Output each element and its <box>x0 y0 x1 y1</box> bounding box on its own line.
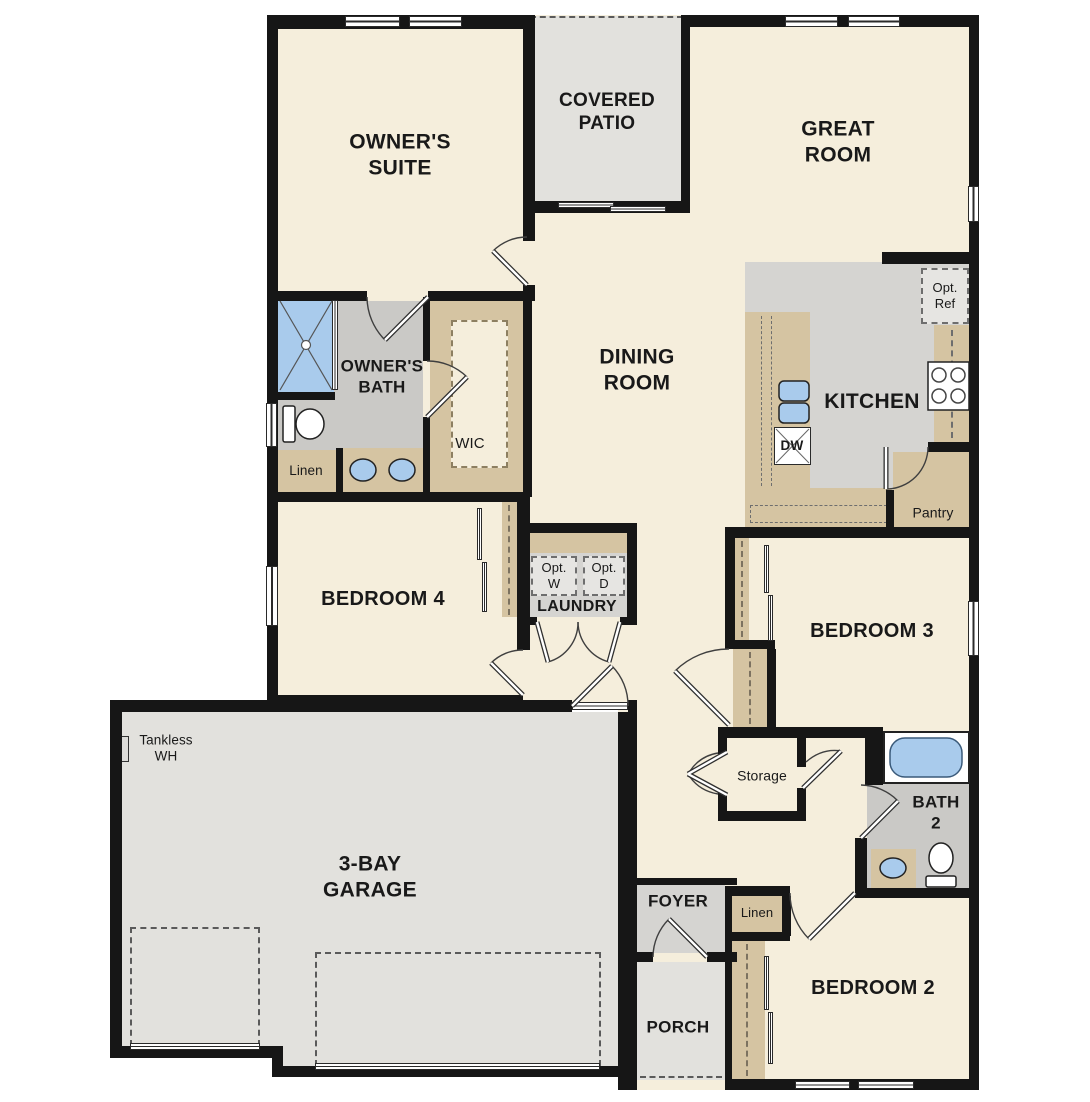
room-label-laundry: LAUNDRY <box>537 597 617 617</box>
wall-segment <box>725 538 735 642</box>
porch-open-edge <box>640 1076 722 1078</box>
room-label-storage: Storage <box>737 767 787 784</box>
window <box>795 1081 850 1089</box>
wall-segment <box>725 1079 979 1090</box>
room-label-covered-patio: COVERED PATIO <box>559 89 655 135</box>
room-label-linen-bath: Linen <box>289 463 323 479</box>
bedroom3-closet-rod <box>741 541 743 647</box>
bypass-door <box>482 562 487 612</box>
bedroom4-closet-rod <box>508 505 510 615</box>
wall-segment <box>865 727 883 785</box>
wall-segment <box>681 15 690 213</box>
owners-vanity <box>343 448 423 492</box>
wall-segment <box>423 297 430 361</box>
wall-segment <box>423 417 430 497</box>
room-label-bedroom2: BEDROOM 2 <box>811 976 935 1000</box>
wall-segment <box>969 15 979 1090</box>
wall-segment <box>267 492 530 502</box>
wall-segment <box>707 952 737 962</box>
wall-segment <box>618 712 637 1090</box>
window <box>266 403 277 447</box>
wall-segment <box>620 617 637 625</box>
shower <box>278 299 334 392</box>
wall-segment <box>517 617 537 625</box>
garage-bay1-outline <box>130 927 260 1046</box>
label-dishwasher: DW <box>780 438 803 454</box>
wall-segment <box>278 392 335 400</box>
wall-segment <box>882 252 979 264</box>
bypass-door <box>768 1012 773 1064</box>
wall-segment <box>928 442 979 452</box>
garage-door-bay1 <box>130 1043 260 1050</box>
wall-segment <box>767 649 776 729</box>
label-opt-washer: Opt. W <box>542 560 567 592</box>
patio-slider-panel <box>610 206 666 212</box>
window <box>968 601 979 656</box>
window <box>266 566 278 626</box>
wall-segment <box>855 888 979 898</box>
wall-segment <box>110 700 572 712</box>
wall-segment <box>725 886 790 896</box>
bypass-door <box>764 545 769 593</box>
window <box>345 16 400 27</box>
patio-open-edge <box>530 16 683 18</box>
wall-segment <box>267 291 367 301</box>
wall-segment <box>797 738 806 767</box>
hall-closet-rod <box>749 652 751 724</box>
wall-segment <box>336 448 343 492</box>
kitchen-right-cabinet-line <box>951 330 953 438</box>
garage-entry-threshold <box>572 702 628 710</box>
window <box>848 16 900 27</box>
shower-glass-door <box>332 300 338 390</box>
wall-segment <box>110 700 122 1058</box>
wall-segment <box>797 788 806 811</box>
wall-segment <box>886 490 894 528</box>
bath2-vanity <box>871 849 916 888</box>
wall-segment <box>523 297 532 497</box>
room-label-great-room: GREAT ROOM <box>801 116 874 167</box>
wall-segment <box>725 888 732 1090</box>
room-label-owners-bath: OWNER'S BATH <box>341 356 424 397</box>
label-opt-ref: Opt. Ref <box>933 280 958 312</box>
room-label-dining-room: DINING ROOM <box>599 344 674 395</box>
room-label-linen-hall: Linen <box>741 905 773 921</box>
label-tankless-wh: Tankless WH <box>139 733 192 766</box>
room-label-porch: PORCH <box>647 1018 710 1039</box>
kitchen-upper-cabinet-line <box>761 316 772 486</box>
garage-door-bay2 <box>315 1063 600 1070</box>
wall-segment <box>725 932 790 941</box>
patio-slider-panel <box>558 202 614 208</box>
wall-segment <box>637 952 653 962</box>
wall-segment <box>523 15 535 213</box>
wall-segment <box>718 727 867 738</box>
wall-segment <box>523 213 535 241</box>
room-label-bath2: BATH 2 <box>912 792 959 833</box>
label-opt-dryer: Opt. D <box>592 560 617 592</box>
window <box>968 186 979 222</box>
room-label-garage: 3-BAY GARAGE <box>323 851 417 902</box>
garage-bay2-outline <box>315 952 601 1066</box>
bypass-door <box>477 508 482 560</box>
wall-segment <box>627 523 637 625</box>
wall-segment <box>782 896 791 936</box>
kitchen-opt-counter-line <box>750 505 887 523</box>
window <box>409 16 462 27</box>
bypass-door <box>764 956 769 1010</box>
wall-segment <box>428 291 530 301</box>
wall-segment <box>523 523 637 533</box>
laundry-shelf <box>523 533 627 553</box>
wall-segment <box>718 811 806 821</box>
room-label-kitchen: KITCHEN <box>824 389 919 415</box>
room-label-wic: WIC <box>455 435 484 453</box>
wall-segment <box>628 700 637 712</box>
bedroom2-closet-rod <box>746 944 748 1076</box>
room-label-foyer: FOYER <box>648 892 708 913</box>
wall-segment <box>725 640 775 649</box>
room-label-owners-suite: OWNER'S SUITE <box>349 129 451 180</box>
window <box>785 16 838 27</box>
bypass-door <box>768 595 773 641</box>
room-label-bedroom3: BEDROOM 3 <box>810 619 934 643</box>
floor-plan: OWNER'S SUITE COVERED PATIO GREAT ROOM D… <box>0 0 1090 1102</box>
wall-segment <box>718 738 727 754</box>
wall-segment <box>725 527 979 538</box>
room-label-bedroom4: BEDROOM 4 <box>321 587 445 611</box>
room-label-pantry: Pantry <box>912 504 953 521</box>
wall-segment <box>637 878 737 885</box>
window <box>858 1081 914 1089</box>
